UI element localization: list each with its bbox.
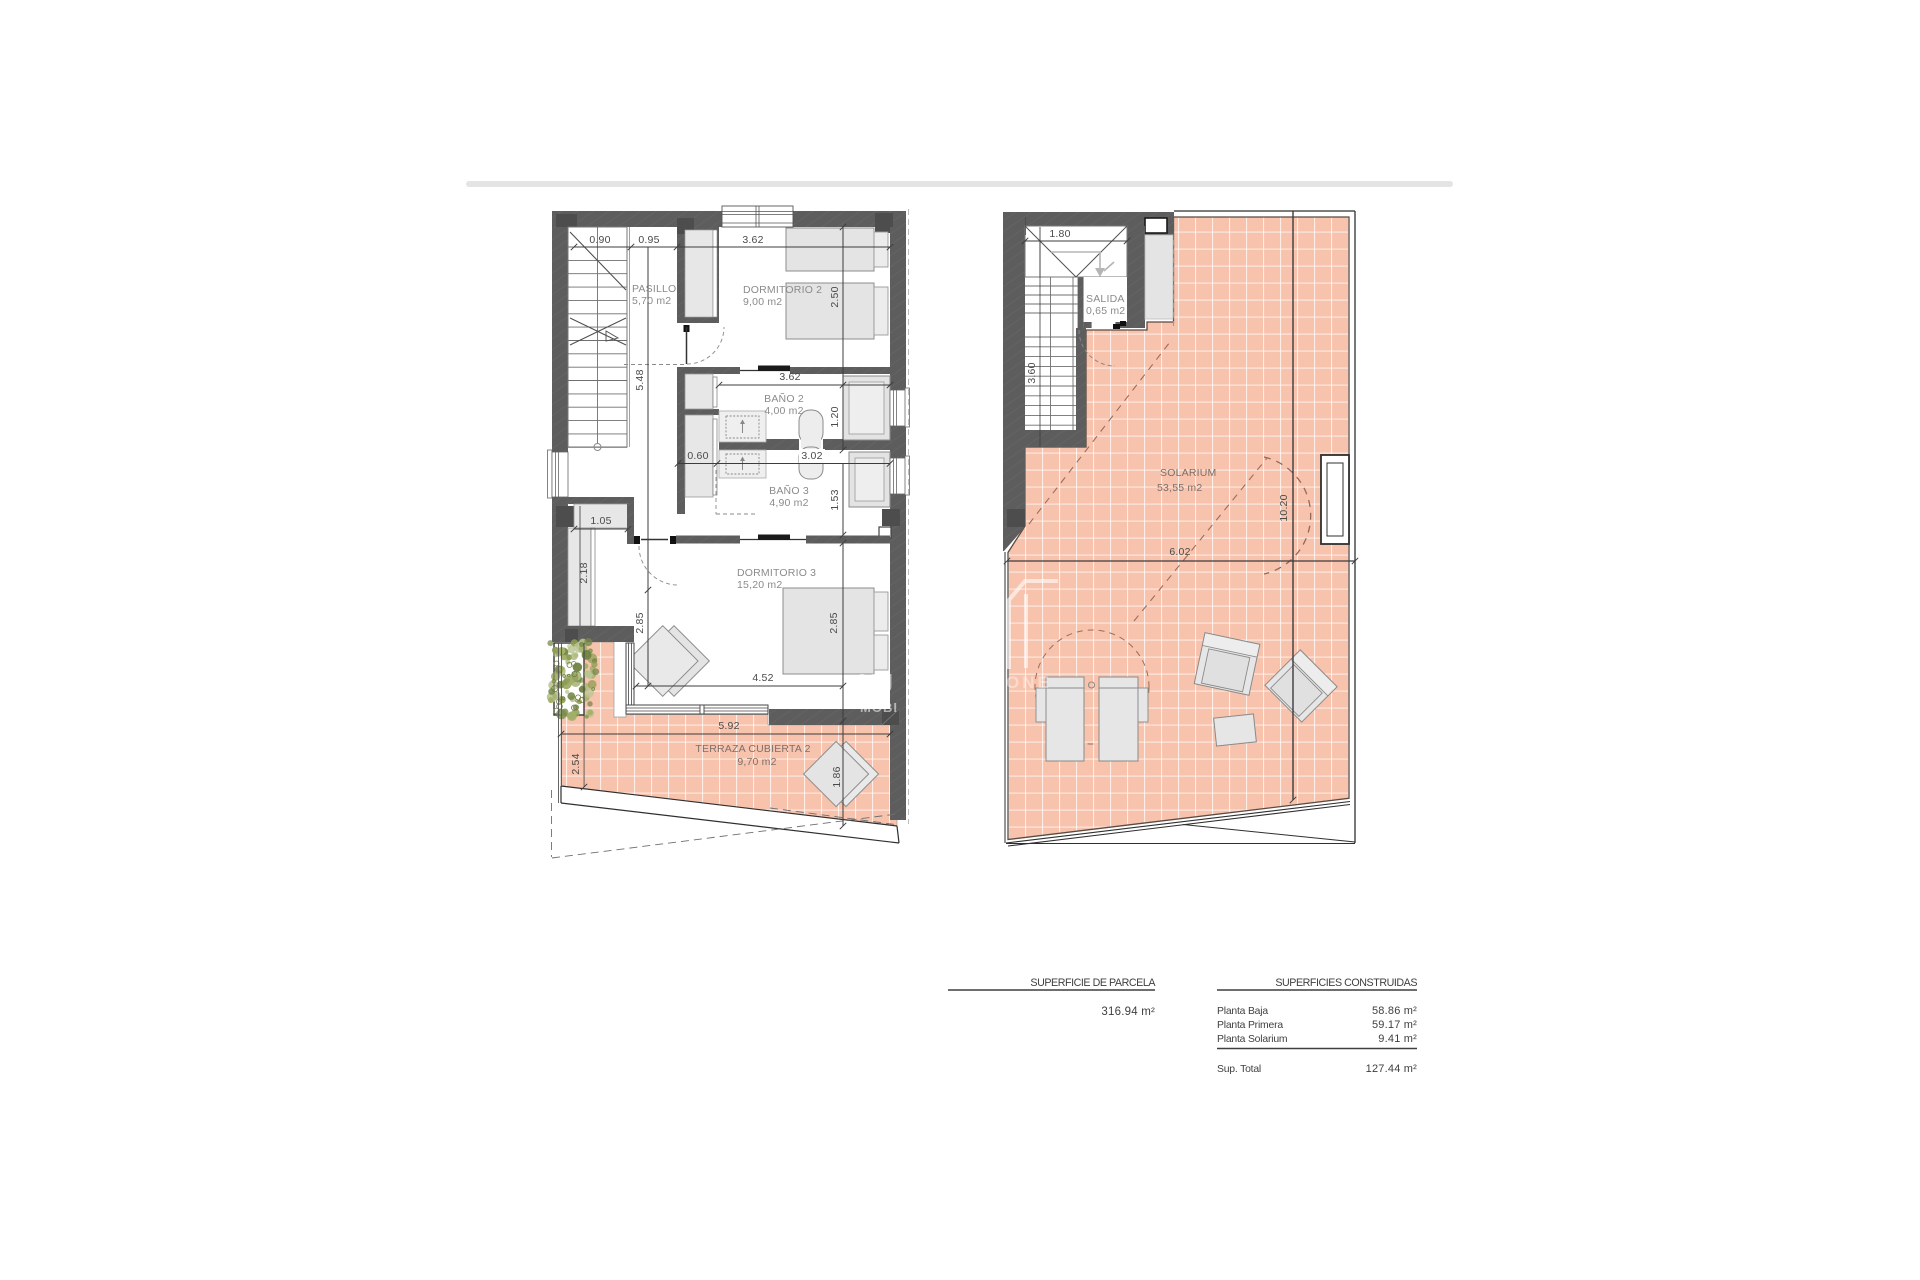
svg-text:316.94 m²: 316.94 m² (1101, 1006, 1155, 1018)
svg-text:2.18: 2.18 (578, 562, 590, 583)
svg-text:0.90: 0.90 (589, 234, 610, 246)
svg-text:Planta Baja: Planta Baja (1217, 1006, 1268, 1017)
svg-text:1.86: 1.86 (831, 766, 843, 787)
svg-text:0.95: 0.95 (638, 234, 659, 246)
svg-text:MOBI: MOBI (860, 700, 898, 715)
svg-text:1.53: 1.53 (829, 489, 841, 510)
svg-text:0,65 m2: 0,65 m2 (1086, 305, 1125, 317)
svg-text:2.85: 2.85 (634, 612, 646, 633)
svg-text:SUPERFICIE DE PARCELA: SUPERFICIE DE PARCELA (1030, 977, 1156, 989)
svg-text:58.86 m²: 58.86 m² (1372, 1005, 1417, 1017)
svg-text:2.85: 2.85 (828, 612, 840, 633)
svg-text:BAÑO 3: BAÑO 3 (769, 484, 809, 497)
svg-text:5.48: 5.48 (634, 369, 646, 390)
svg-text:DORMITORIO 3: DORMITORIO 3 (737, 567, 816, 579)
svg-text:3.60: 3.60 (1026, 362, 1038, 383)
svg-text:9,70 m2: 9,70 m2 (737, 756, 776, 768)
svg-text:9.41 m²: 9.41 m² (1378, 1033, 1417, 1045)
svg-text:TERRAZA CUBIERTA 2: TERRAZA CUBIERTA 2 (695, 743, 810, 755)
svg-text:53,55 m2: 53,55 m2 (1157, 482, 1202, 494)
svg-text:BAÑO 2: BAÑO 2 (764, 392, 804, 405)
svg-text:3.02: 3.02 (801, 450, 822, 462)
svg-text:SUPERFICIES CONSTRUIDAS: SUPERFICIES CONSTRUIDAS (1275, 977, 1417, 989)
svg-text:3.62: 3.62 (779, 371, 800, 383)
svg-text:PASILLO: PASILLO (632, 283, 676, 295)
svg-text:Sup. Total: Sup. Total (1217, 1064, 1261, 1075)
svg-text:3.62: 3.62 (742, 234, 763, 246)
svg-text:Planta Primera: Planta Primera (1217, 1020, 1283, 1031)
svg-text:Planta Solarium: Planta Solarium (1217, 1034, 1287, 1045)
svg-text:59.17 m²: 59.17 m² (1372, 1019, 1417, 1031)
svg-text:10.20: 10.20 (1278, 494, 1290, 521)
svg-text:1.20: 1.20 (829, 406, 841, 427)
svg-text:1.80: 1.80 (1049, 228, 1070, 240)
svg-text:1.05: 1.05 (590, 515, 611, 527)
svg-text:9,00 m2: 9,00 m2 (743, 296, 782, 308)
svg-text:2.50: 2.50 (829, 286, 841, 307)
svg-text:4,90 m2: 4,90 m2 (769, 497, 808, 509)
svg-text:5,70 m2: 5,70 m2 (632, 295, 671, 307)
svg-text:4,00 m2: 4,00 m2 (764, 405, 803, 417)
svg-text:SOLARIUM: SOLARIUM (1160, 467, 1216, 479)
svg-text:DORMITORIO 2: DORMITORIO 2 (743, 284, 822, 296)
svg-text:15,20 m2: 15,20 m2 (737, 579, 782, 591)
svg-text:ONE: ONE (1006, 673, 1052, 692)
svg-text:4.52: 4.52 (752, 672, 773, 684)
svg-text:SALIDA: SALIDA (1086, 293, 1125, 305)
svg-text:NJ: NJ (858, 668, 895, 698)
svg-text:6.02: 6.02 (1169, 546, 1190, 558)
svg-text:0.60: 0.60 (687, 450, 708, 462)
svg-text:5.92: 5.92 (718, 720, 739, 732)
svg-text:2.54: 2.54 (570, 753, 582, 774)
svg-text:127.44 m²: 127.44 m² (1366, 1063, 1417, 1075)
